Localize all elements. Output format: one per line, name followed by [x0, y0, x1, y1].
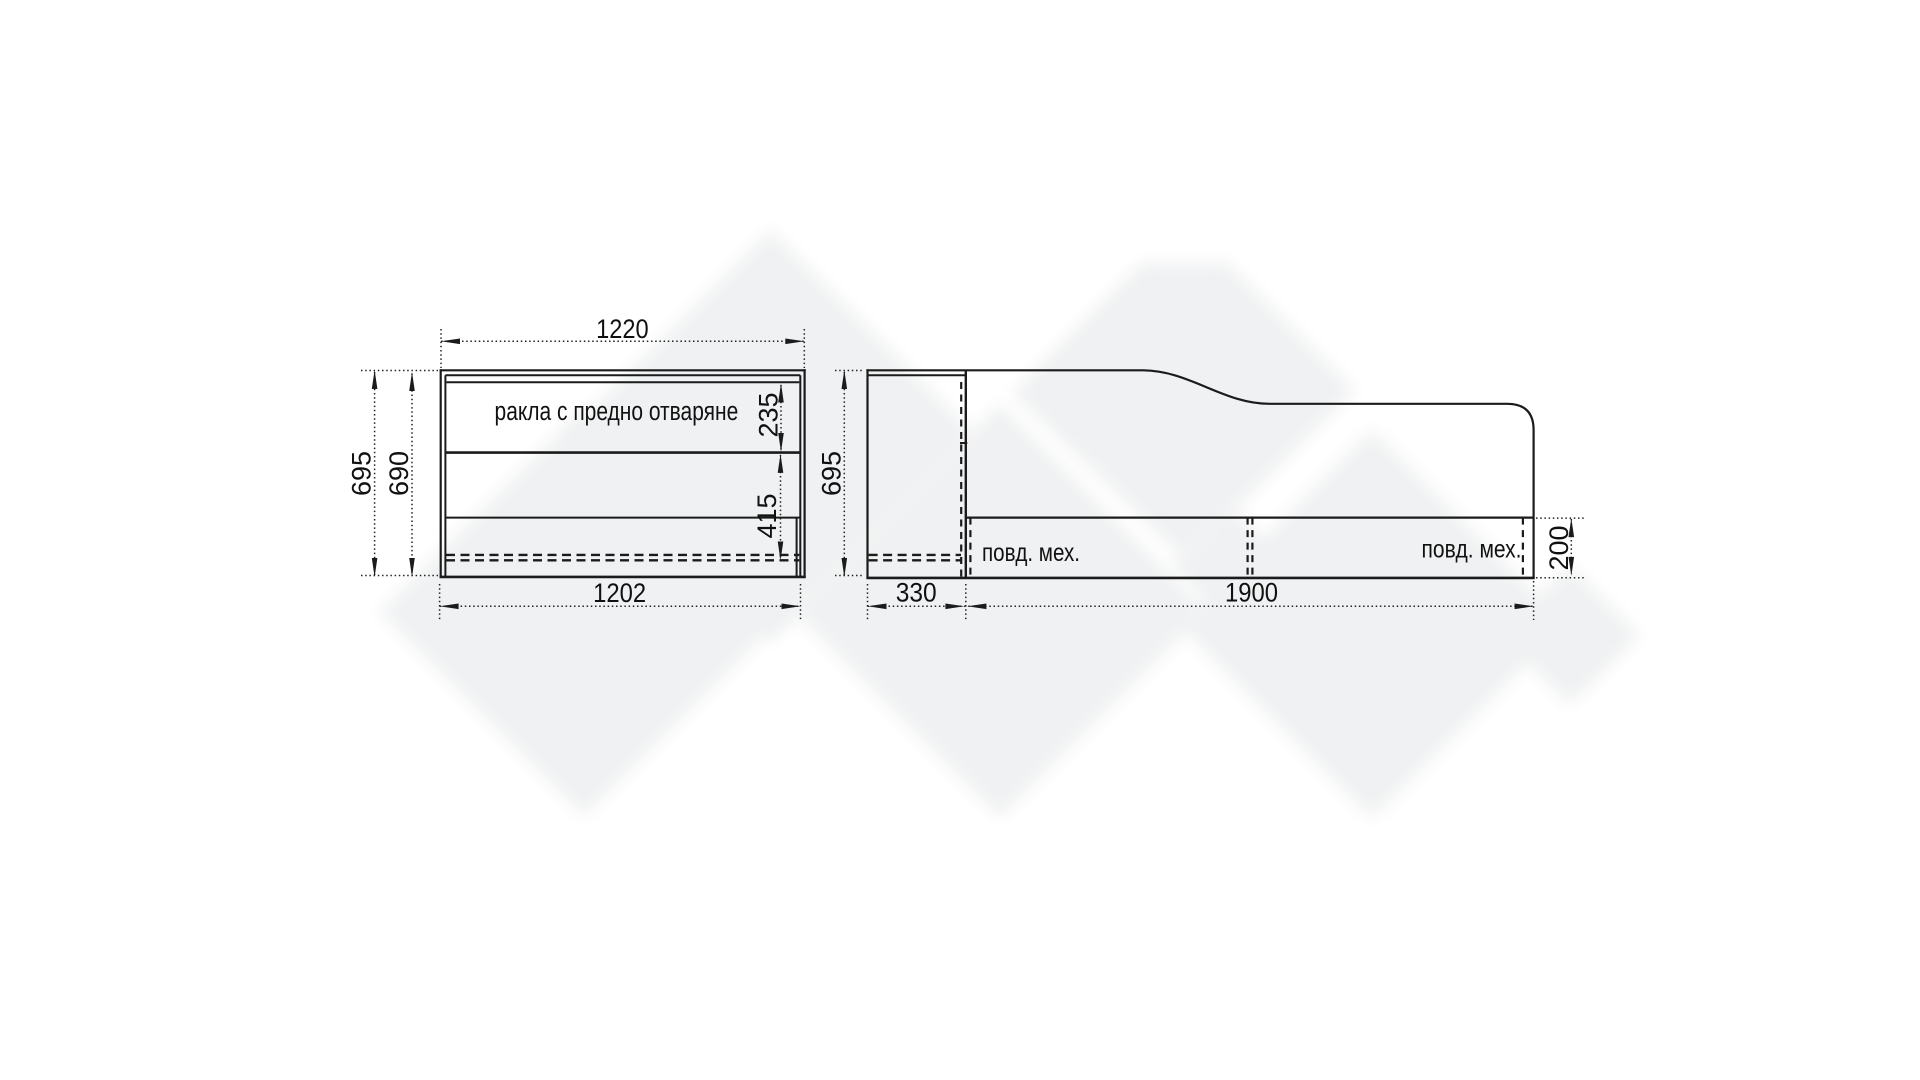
svg-text:200: 200: [1544, 525, 1574, 570]
svg-text:235: 235: [753, 392, 783, 437]
svg-text:ракла с предно отваряне: ракла с предно отваряне: [495, 398, 739, 426]
svg-text:повд. мех.: повд. мех.: [1422, 536, 1522, 564]
svg-text:1202: 1202: [593, 578, 646, 608]
svg-text:415: 415: [752, 493, 782, 538]
svg-text:1900: 1900: [1225, 577, 1278, 607]
svg-text:695: 695: [347, 451, 377, 496]
svg-text:1220: 1220: [596, 314, 649, 344]
svg-text:690: 690: [384, 451, 414, 496]
svg-text:330: 330: [896, 577, 937, 607]
svg-text:695: 695: [816, 451, 846, 496]
svg-text:повд. мех.: повд. мех.: [982, 539, 1080, 567]
